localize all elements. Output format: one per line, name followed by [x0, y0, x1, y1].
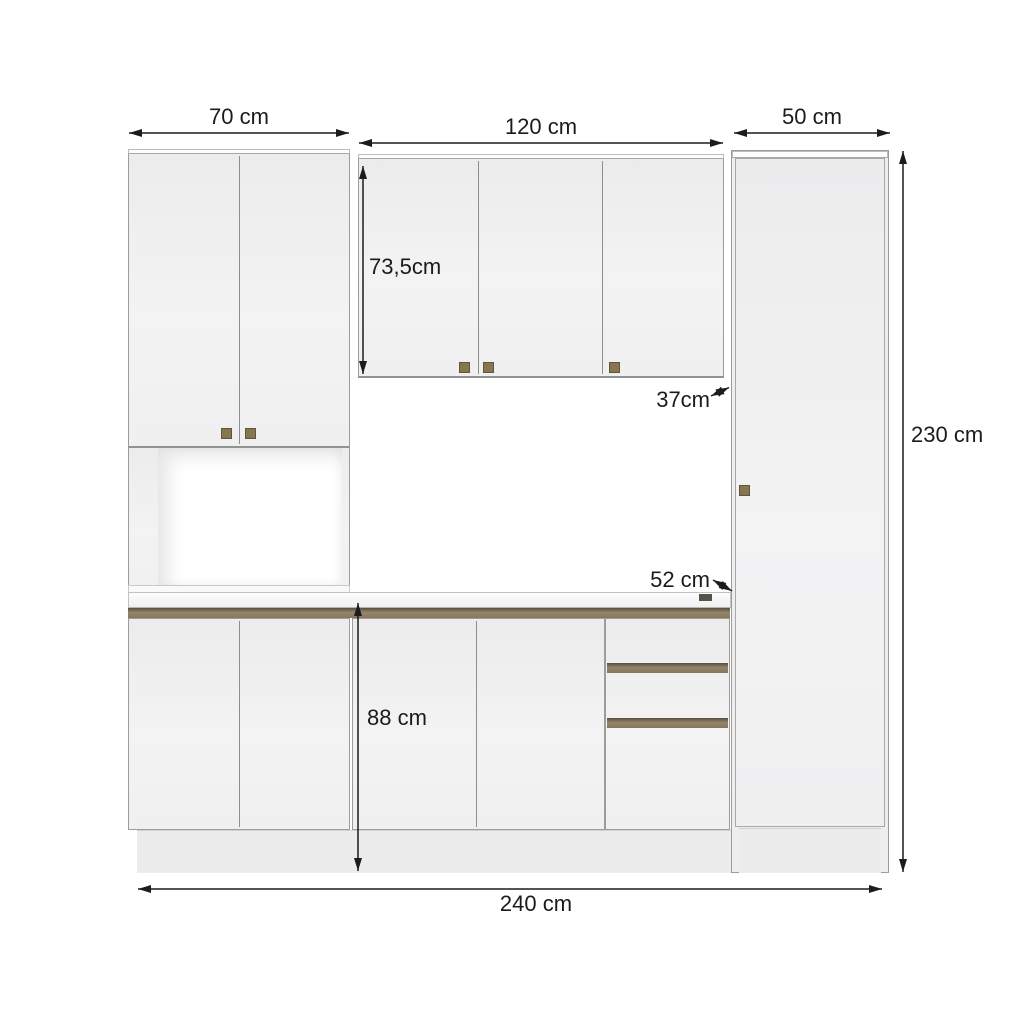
door-gap: [478, 161, 479, 374]
drawer-handle: [607, 718, 728, 728]
counter-joint-mark: [699, 594, 712, 601]
door-handle: [483, 362, 494, 373]
wall-cabinet-left: [128, 153, 350, 448]
door-gap: [476, 621, 477, 827]
tall-cabinet-right: [731, 150, 889, 873]
tall-cabinet-door: [735, 158, 885, 827]
drawer-handle: [607, 663, 728, 673]
hutch-niche-body: [128, 448, 350, 600]
door-handle: [609, 362, 620, 373]
countertop: [128, 592, 731, 608]
handle-rail: [128, 608, 730, 618]
open-niche: [158, 448, 342, 585]
door-gap: [239, 156, 240, 444]
dim-line-37: [711, 388, 729, 397]
kitchen-dimension-diagram: 70 cm 120 cm 50 cm 73,5cm 37cm 230 cm 52…: [0, 0, 1024, 1024]
base-cabinet-left: [128, 618, 350, 830]
dim-label-37: 37cm: [624, 388, 710, 412]
door-gap: [602, 161, 603, 374]
cabinet-top-panel: [128, 149, 350, 154]
dim-label-88: 88 cm: [367, 706, 427, 730]
dim-label-52: 52 cm: [620, 568, 710, 592]
dim-label-50: 50 cm: [752, 105, 872, 129]
dim-line-52: [713, 580, 732, 591]
door-handle: [459, 362, 470, 373]
door-handle: [245, 428, 256, 439]
door-handle: [221, 428, 232, 439]
door-handle: [739, 485, 750, 496]
base-drawer-unit: [605, 618, 730, 830]
tall-cabinet-plinth: [739, 828, 881, 873]
dim-label-240: 240 cm: [476, 892, 596, 916]
dim-label-230: 230 cm: [911, 423, 983, 447]
dim-label-73-5: 73,5cm: [369, 255, 441, 279]
door-gap: [239, 621, 240, 827]
dim-label-70: 70 cm: [179, 105, 299, 129]
cabinet-top-panel: [732, 151, 888, 158]
cabinet-top-panel: [358, 154, 724, 159]
dim-label-120: 120 cm: [481, 115, 601, 139]
